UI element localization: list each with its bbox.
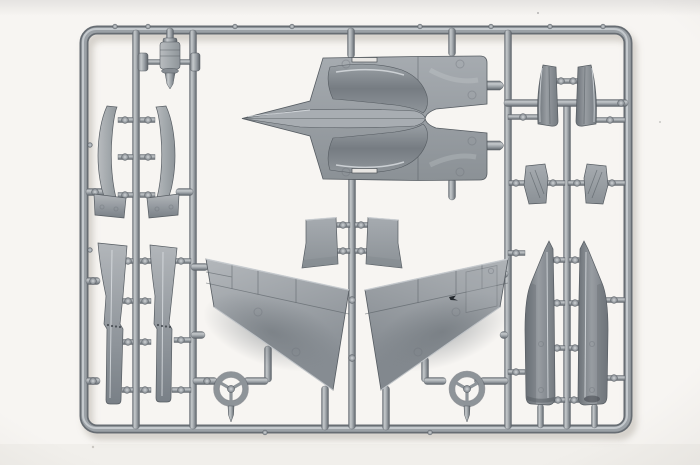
sprue-photograph [0, 0, 700, 465]
vignette [0, 0, 700, 465]
photo-stage [0, 0, 700, 465]
